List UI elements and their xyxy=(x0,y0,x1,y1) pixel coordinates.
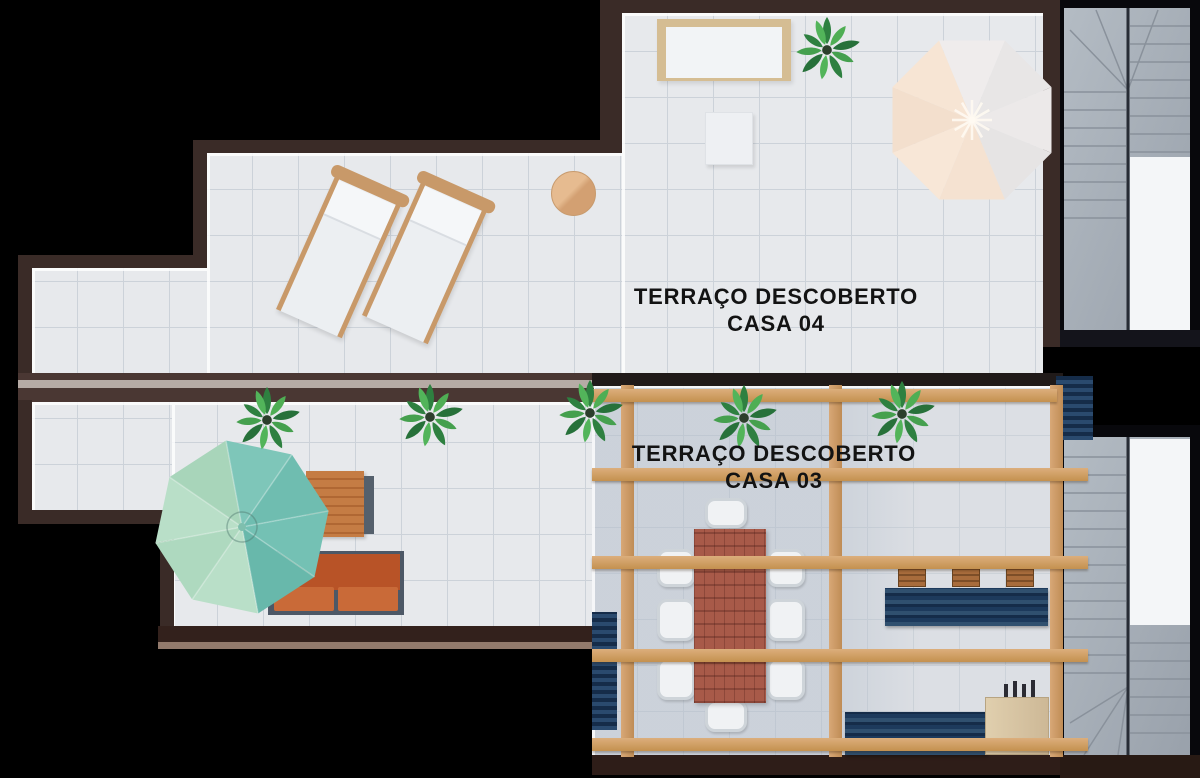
wall-divider-stripe xyxy=(18,380,594,388)
label-terraco-casa03: TERRAÇO DESCOBERTO CASA 03 xyxy=(614,440,934,494)
pergola-post-3 xyxy=(1050,385,1063,757)
label-casa03-line2: CASA 03 xyxy=(614,467,934,494)
plant-row-3 xyxy=(555,378,625,448)
wall-left-mid xyxy=(193,140,207,268)
bottle-3 xyxy=(1022,684,1026,697)
umbrella-teal xyxy=(152,437,332,617)
pergola-beam-1 xyxy=(592,389,1057,402)
white-sofa xyxy=(657,19,791,81)
umbrella-beige xyxy=(884,32,1060,208)
wall-divider-band xyxy=(18,373,594,402)
pergola-bottom-wall xyxy=(592,755,1090,775)
bottle-1 xyxy=(1004,684,1008,697)
bottle-4 xyxy=(1031,680,1035,697)
staircase-top-right xyxy=(1060,0,1200,347)
dining-chair-right-3 xyxy=(767,658,805,700)
wall-lower-bottom-stripe xyxy=(158,642,596,649)
pergola-beam-5 xyxy=(592,738,1088,751)
plant-row-2 xyxy=(395,382,465,452)
terrace-floor-casa04-left xyxy=(32,268,207,373)
coffee-table-side xyxy=(364,476,374,534)
bottle-2 xyxy=(1013,681,1017,697)
wall-left-lower xyxy=(18,255,32,388)
dining-chair-bottom xyxy=(705,700,747,732)
wall-step-2 xyxy=(18,255,207,268)
dining-chair-top xyxy=(705,498,747,528)
label-casa04-line1: TERRAÇO DESCOBERTO xyxy=(616,283,936,310)
wall-step-1 xyxy=(193,140,622,153)
dining-chair-left-2 xyxy=(657,599,695,641)
terrace-floor-casa03-strip xyxy=(32,402,172,510)
pergola-top-band xyxy=(592,373,1063,386)
label-terraco-casa04: TERRAÇO DESCOBERTO CASA 04 xyxy=(616,283,936,337)
plant-row-5 xyxy=(867,379,937,449)
label-casa03-line1: TERRAÇO DESCOBERTO xyxy=(614,440,934,467)
bar-counter xyxy=(885,588,1048,626)
white-side-table xyxy=(705,112,753,165)
plant-row-1 xyxy=(232,385,302,455)
wall-upper-top xyxy=(600,0,1062,13)
pergola-beam-4 xyxy=(592,649,1088,662)
orange-sofa-seat-2 xyxy=(338,587,398,611)
blue-slat-bench-left xyxy=(592,612,617,730)
wall-upper-left xyxy=(600,0,622,153)
label-casa04-line2: CASA 04 xyxy=(616,310,936,337)
plant-upper-terrace xyxy=(792,15,862,85)
pergola-beam-3 xyxy=(592,556,1088,569)
wall-lower-strip-bottom xyxy=(18,510,172,524)
dining-chair-right-2 xyxy=(767,599,805,641)
floorplan-stage: TERRAÇO DESCOBERTO CASA 04 TERRAÇO DESCO… xyxy=(0,0,1200,778)
wall-lower-bottom xyxy=(158,626,596,649)
wall-lower-left xyxy=(18,400,32,523)
dining-chair-left-3 xyxy=(657,658,695,700)
round-wood-table xyxy=(551,171,596,216)
